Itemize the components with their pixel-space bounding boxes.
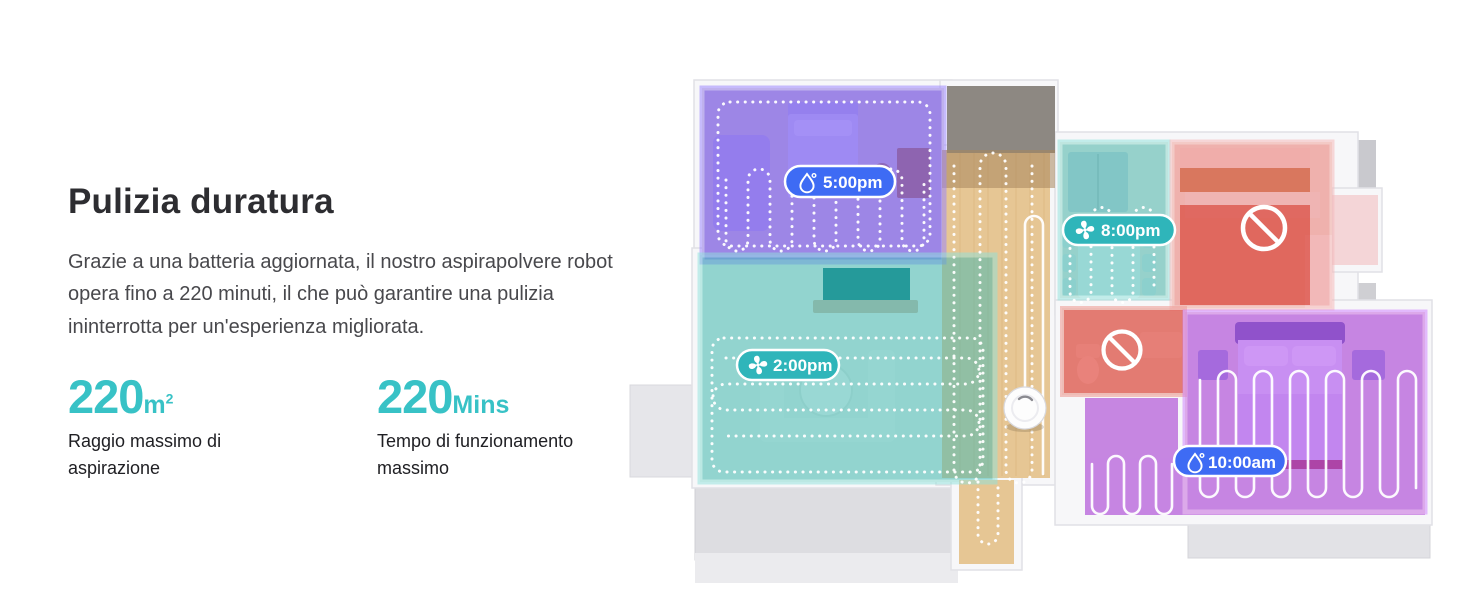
page-title: Pulizia duratura (68, 182, 628, 222)
stat-runtime: 220Mins Tempo di funzionamento massimo (377, 373, 612, 482)
robot-vacuum (1004, 387, 1046, 432)
stat-coverage-label: Raggio massimo di aspirazione (68, 428, 303, 482)
schedule-badge: 5:00pm (785, 166, 895, 197)
svg-text:8:00pm: 8:00pm (1101, 221, 1161, 240)
stat-coverage-value: 220 (68, 370, 143, 423)
stat-coverage: 220m2 Raggio massimo di aspirazione (68, 373, 303, 482)
description-text: Grazie a una batteria aggiornata, il nos… (68, 246, 616, 343)
stat-coverage-unit-sup: 2 (166, 391, 174, 407)
stat-runtime-value: 220 (377, 370, 452, 423)
schedule-badge: 2:00pm (737, 350, 839, 380)
svg-text:2:00pm: 2:00pm (773, 356, 833, 375)
stat-runtime-unit: Mins (452, 391, 509, 419)
stats-row: 220m2 Raggio massimo di aspirazione 220M… (68, 373, 628, 482)
schedule-badge: 8:00pm (1063, 215, 1175, 245)
stat-runtime-label: Tempo di funzionamento massimo (377, 428, 612, 482)
hero-section: Pulizia duratura Grazie a una batteria a… (0, 0, 1464, 600)
stat-coverage-unit: m (143, 391, 165, 419)
svg-text:5:00pm: 5:00pm (823, 173, 883, 192)
schedule-badge: 10:00am (1174, 446, 1286, 476)
copy-panel: Pulizia duratura Grazie a una batteria a… (68, 182, 628, 482)
svg-text:10:00am: 10:00am (1208, 453, 1276, 472)
floorplan-illustration: 5:00pm 8:00pm 2:00pm (610, 50, 1464, 600)
